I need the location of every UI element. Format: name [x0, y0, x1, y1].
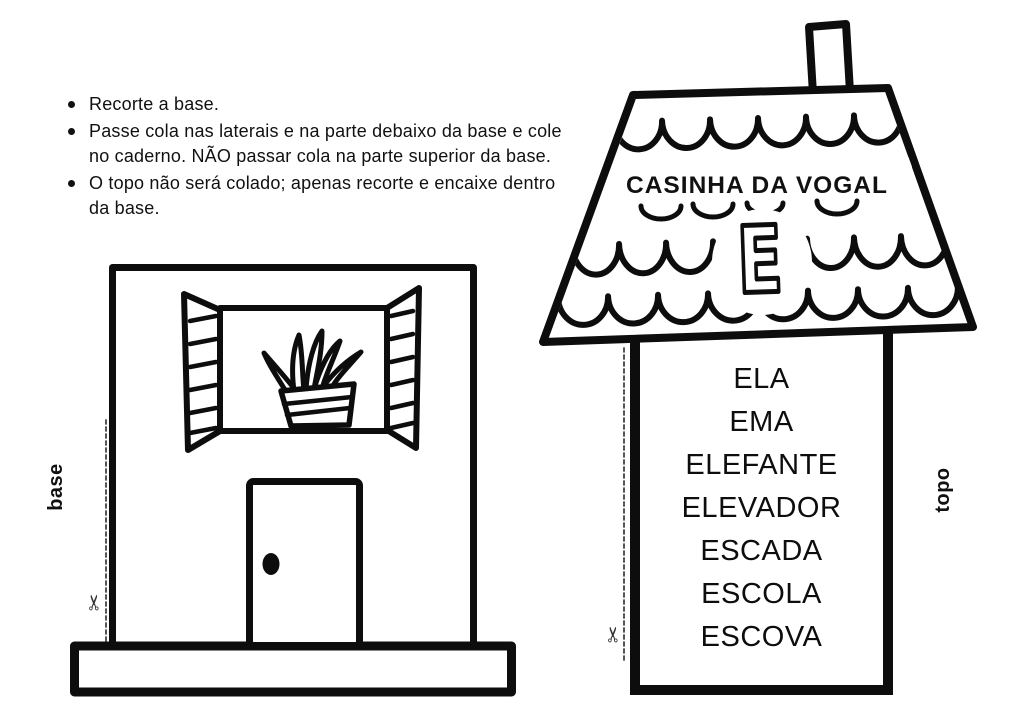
instruction-item: O topo não será colado; apenas recorte e…: [62, 171, 564, 221]
vowel-word: EMA: [640, 401, 883, 444]
topo-label: topo: [932, 442, 958, 538]
roof-title: CASINHA DA VOGAL: [626, 172, 888, 199]
vowel-word-list: ELA EMA ELEFANTE ELEVADOR ESCADA ESCOLA …: [640, 330, 883, 659]
bullet-icon: [68, 180, 75, 187]
door: [250, 482, 360, 646]
bullet-icon: [68, 101, 75, 108]
bullet-icon: [68, 128, 75, 135]
plant-leaf: [306, 331, 322, 389]
instruction-item: Recorte a base.: [62, 92, 564, 117]
plant-leaf: [293, 335, 304, 391]
window-right-shutter: [387, 288, 419, 448]
vowel-word: ESCOVA: [640, 616, 883, 659]
base-label: base: [45, 439, 71, 535]
chimney: [809, 24, 850, 94]
instruction-text: Recorte a base.: [89, 94, 219, 114]
door-panel: [250, 482, 360, 646]
worksheet-page: Recorte a base. Passe cola nas laterais …: [0, 0, 1024, 724]
roof-title-band: [622, 157, 912, 204]
plant-leaf: [264, 353, 296, 393]
base-house-drawing: [75, 268, 512, 693]
roof-shingles: [558, 114, 959, 326]
plant-leaf: [314, 341, 340, 389]
base-platform: [75, 646, 512, 692]
instruction-text: O topo não será colado; apenas recorte e…: [89, 173, 555, 218]
instruction-item: Passe cola nas laterais e na parte debai…: [62, 119, 564, 169]
window-left-shutter: [184, 294, 220, 450]
window-frame: [220, 308, 387, 431]
scissors-icon: ✂: [603, 626, 624, 644]
vowel-word: ELEVADOR: [640, 487, 883, 530]
shutter-slats: [190, 311, 413, 433]
window: [184, 288, 419, 450]
instructions-list: Recorte a base. Passe cola nas laterais …: [62, 92, 564, 223]
vowel-word: ELA: [640, 358, 883, 401]
vowel-letter: E: [735, 206, 784, 314]
base-house-wall: [113, 268, 474, 648]
vowel-patch: [712, 209, 812, 315]
vowel-word: ELEFANTE: [640, 444, 883, 487]
roof: [543, 88, 973, 342]
plant-pot: [281, 384, 354, 426]
door-knob: [263, 553, 280, 575]
instruction-text: Passe cola nas laterais e na parte debai…: [89, 121, 562, 166]
scissors-icon: ✂: [84, 594, 105, 612]
plant-leaf: [322, 352, 361, 389]
roof-shingles-small: [641, 201, 857, 219]
potted-plant: [264, 331, 361, 426]
vowel-word: ESCADA: [640, 530, 883, 573]
vowel-word: ESCOLA: [640, 573, 883, 616]
topo-house-body: ELA EMA ELEFANTE ELEVADOR ESCADA ESCOLA …: [630, 330, 893, 695]
